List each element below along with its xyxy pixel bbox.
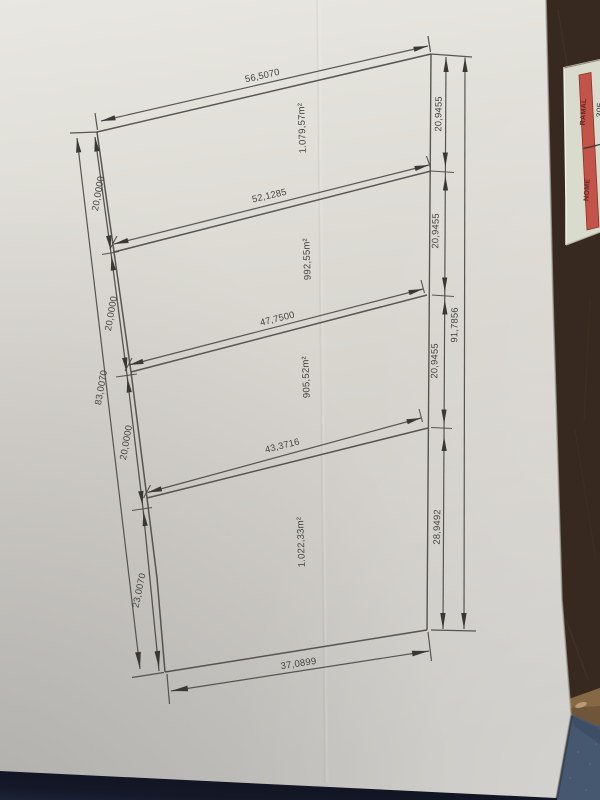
svg-text:91,7856: 91,7856 (448, 307, 460, 342)
svg-text:20,9455: 20,9455 (429, 213, 441, 248)
svg-text:RAMAL: RAMAL (578, 98, 588, 126)
svg-text:992,55m²: 992,55m² (301, 237, 313, 280)
svg-text:28,9492: 28,9492 (431, 509, 443, 544)
svg-text:NOME: NOME (581, 178, 591, 201)
svg-text:305: 305 (594, 102, 600, 118)
svg-text:1.022,33m²: 1.022,33m² (295, 516, 308, 567)
svg-text:1.079,57m²: 1.079,57m² (296, 102, 309, 153)
svg-text:905,52m²: 905,52m² (300, 355, 312, 398)
svg-text:20,9455: 20,9455 (428, 343, 440, 378)
svg-text:20,9455: 20,9455 (432, 96, 444, 131)
